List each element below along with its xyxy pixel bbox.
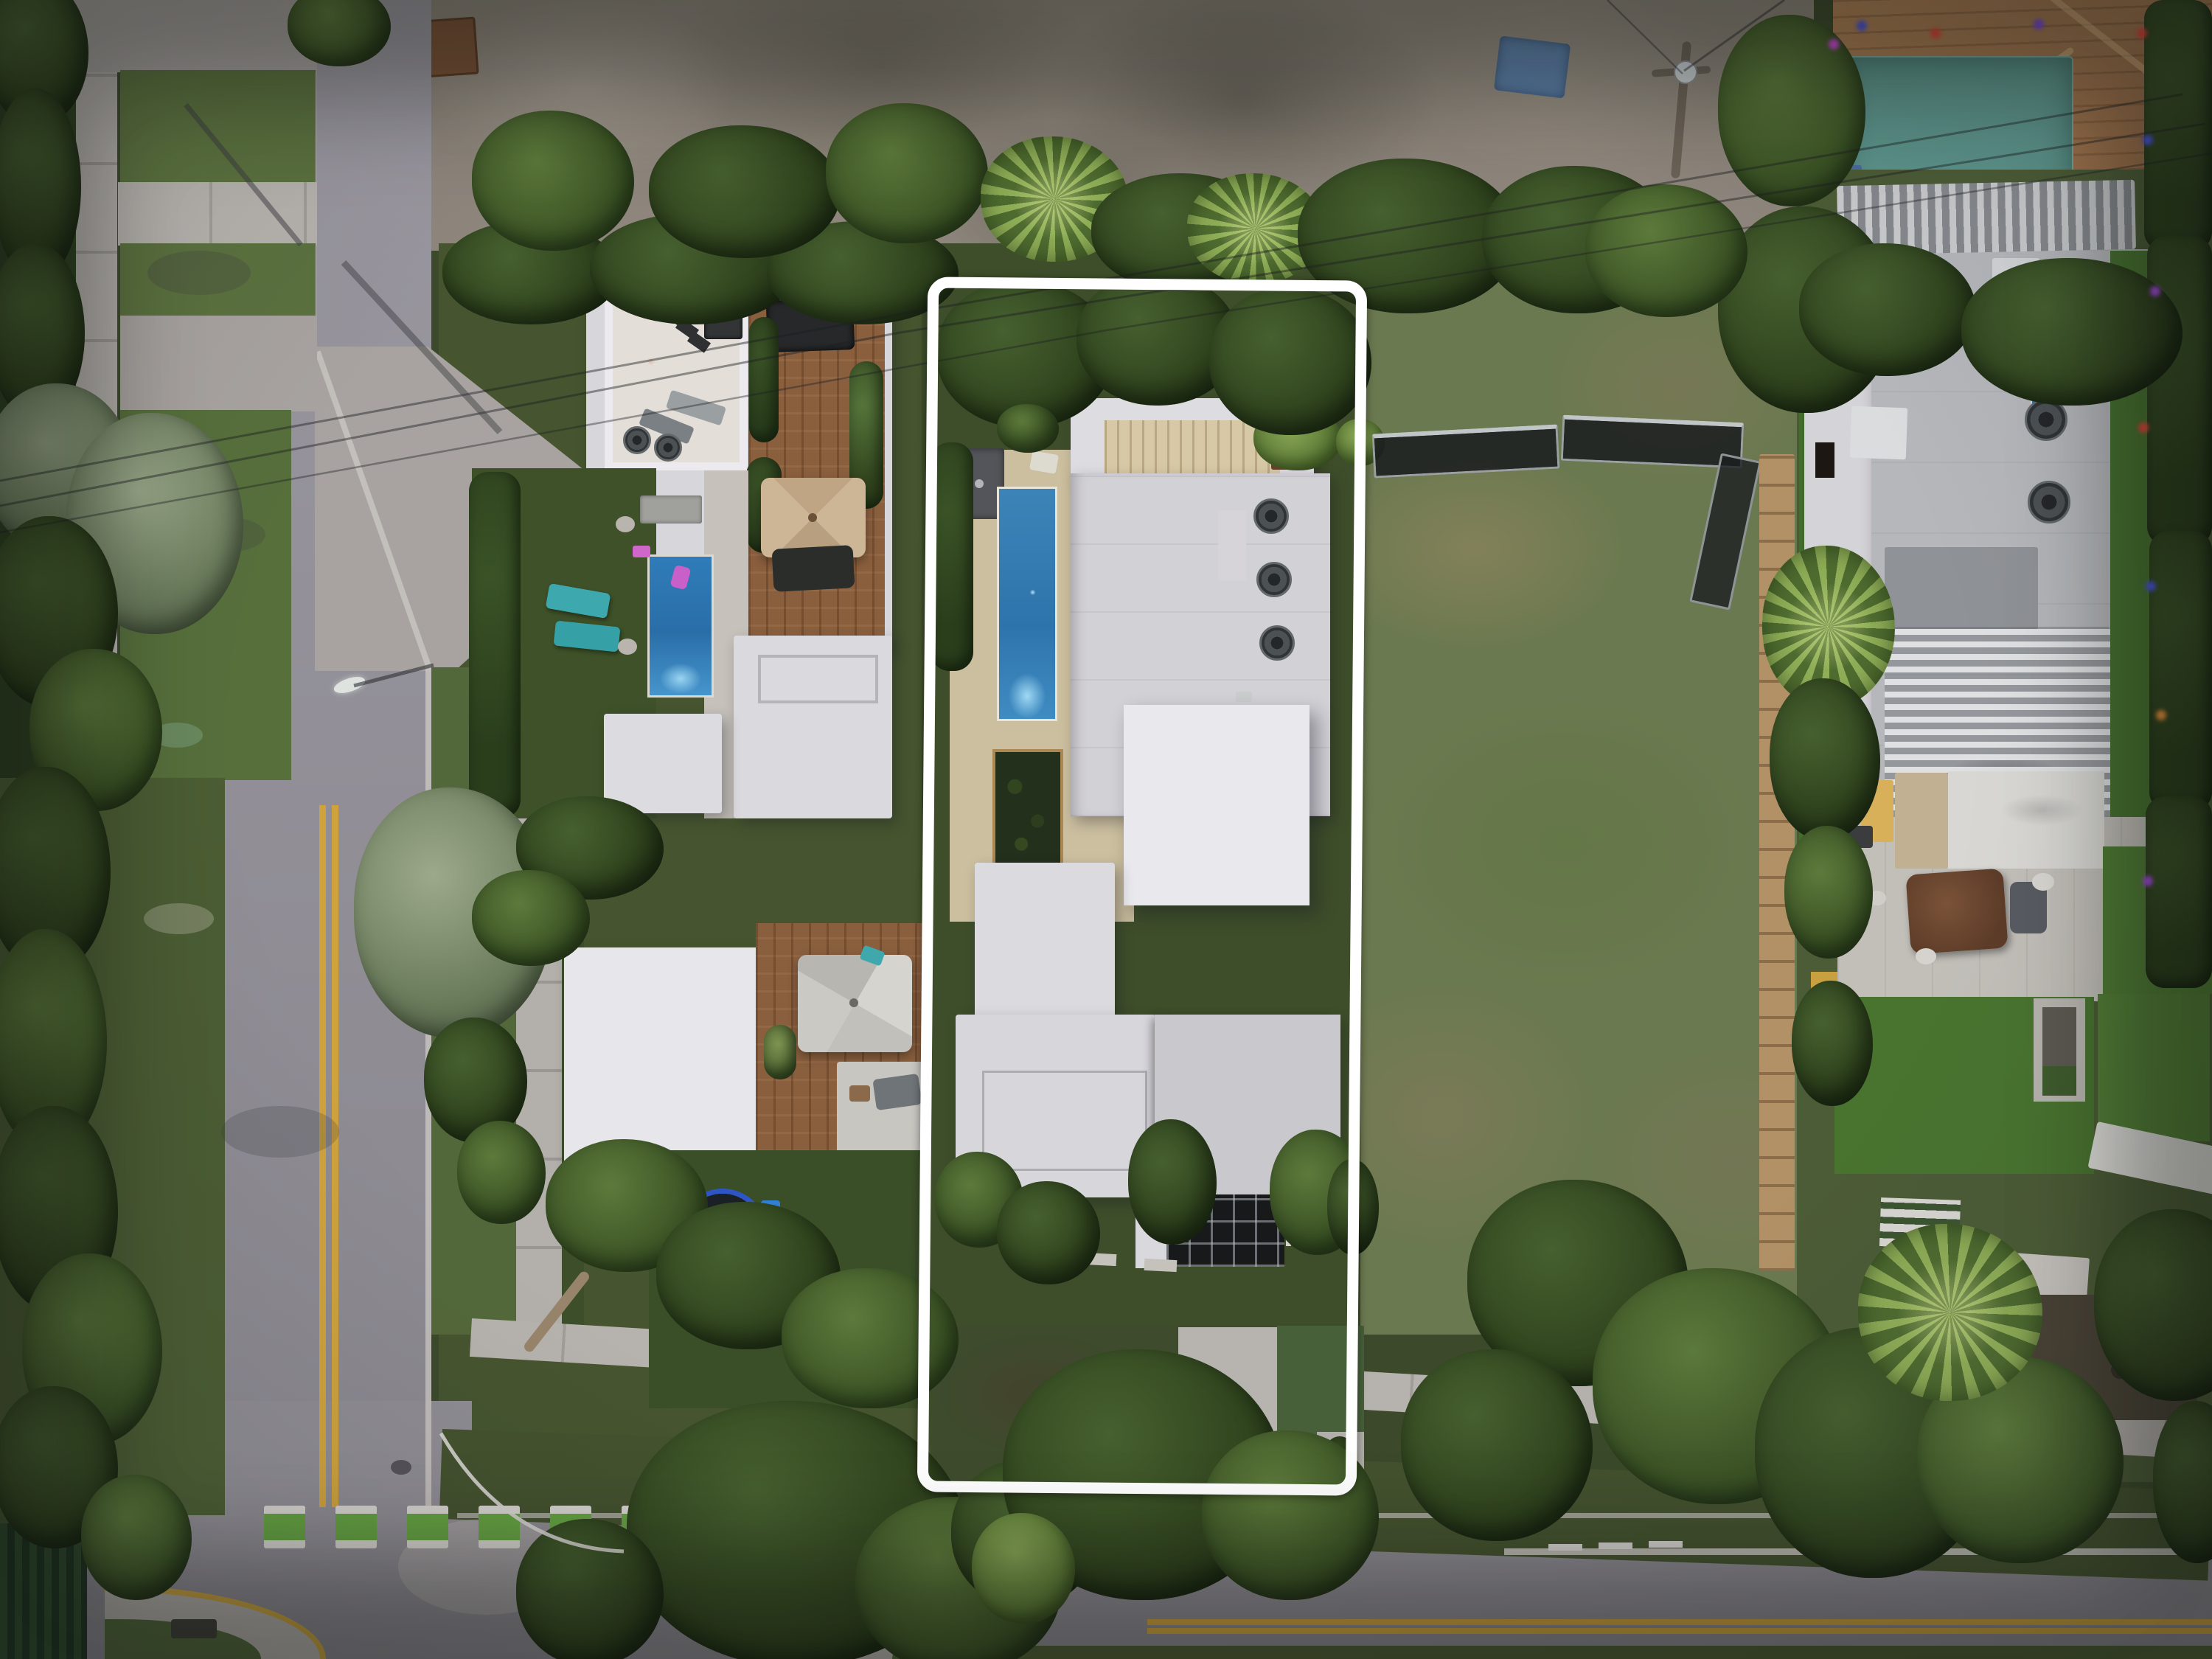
power-line [1684, 0, 1784, 71]
property-outline [917, 276, 1367, 1495]
aerial-photo [0, 0, 2212, 1659]
pole-shadow [186, 105, 301, 245]
turn-guide-arc [441, 1433, 624, 1551]
power-line [1607, 0, 1683, 74]
string-lights [0, 0, 7, 7]
pole-shadow [344, 262, 500, 432]
streetlight-arm [354, 665, 434, 686]
